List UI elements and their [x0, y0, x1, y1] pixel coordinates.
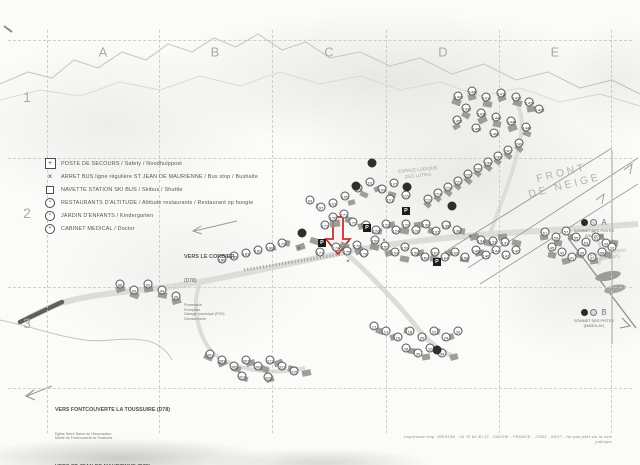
- facility-marker-icon: [298, 229, 307, 238]
- facility-marker-icon: [403, 183, 412, 192]
- chalet-number-marker: 313: [278, 362, 287, 371]
- chalet-number-marker: 136: [453, 226, 462, 235]
- direction-corbier: VERS LE CORBIER (D78) PharmaciePompiersG…: [184, 236, 274, 339]
- chalet-number-marker: 26: [454, 327, 463, 336]
- chalet-number-marker: 168: [461, 253, 470, 262]
- kindergarten-icon: •: [45, 211, 55, 221]
- chalet-number-marker: 1452: [453, 116, 462, 125]
- chalet-number-marker: 226: [464, 170, 473, 179]
- chalet-number-marker: 230: [474, 164, 483, 173]
- chalet-number-marker: 222: [454, 177, 463, 186]
- chalet-number-marker: 12: [370, 322, 379, 331]
- grid-line-horizontal: [8, 40, 632, 41]
- chalet-number-marker: 115: [402, 191, 411, 200]
- chalet-number-marker: 20: [418, 333, 427, 342]
- label-espace-ludique: ESPACE LUDIQUE DES LUTINS: [388, 164, 449, 181]
- scanned-village-map-page: ABCDE123 +POSTE DE SECOURS / Safety / No…: [0, 0, 640, 465]
- chalet-number-marker: 234: [484, 158, 493, 167]
- chalet-number-marker: 88: [116, 280, 125, 289]
- chalet-number-marker: 303: [218, 356, 227, 365]
- facility-marker-icon: [368, 159, 377, 168]
- chalet-number-marker: 18: [406, 327, 415, 336]
- facility-marker-icon: [352, 182, 361, 191]
- grid-line-vertical: [386, 30, 387, 433]
- grid-column-letter: A: [99, 45, 108, 60]
- bus-stop-cross-icon: ×: [346, 259, 350, 265]
- chalet-number-marker: 148: [472, 246, 481, 255]
- chalet-number-marker: 1402: [454, 92, 463, 101]
- chalet-number-marker: 132: [432, 227, 441, 236]
- chalet-number-marker: 138: [442, 221, 451, 230]
- chalet-number-marker: 307: [242, 356, 251, 365]
- chalet-number-marker: 103: [329, 199, 338, 208]
- chalet-number-marker: 317: [238, 372, 247, 381]
- grid-row-number: 2: [23, 205, 31, 221]
- chalet-number-marker: 309: [254, 362, 263, 371]
- direction-title: VERS FONTCOUVERTE LA TOUSSUIRE (D78): [55, 407, 205, 413]
- chalet-number-marker: 1415: [497, 89, 506, 98]
- chalet-number-marker: 124: [392, 226, 401, 235]
- chalet-number-marker: 146: [482, 251, 491, 260]
- restaurant-icon: •: [45, 198, 55, 208]
- grid-line-horizontal: [8, 287, 632, 288]
- chalet-number-marker: 16: [394, 333, 403, 342]
- chalet-number-marker: 214: [434, 189, 443, 198]
- chalet-number-marker: 144: [492, 246, 501, 255]
- chalet-number-marker: 154: [391, 248, 400, 257]
- chalet-number-marker: 1432: [462, 104, 471, 113]
- direction-sub-line: Mairie de Fontcouverte-la-Toussuire: [55, 436, 205, 440]
- grid-column-letter: E: [551, 45, 560, 60]
- grid-column-letter: C: [324, 45, 333, 60]
- chalet-number-marker: 24: [442, 333, 451, 342]
- chalet-number-marker: 177: [316, 248, 325, 257]
- chalet-number-marker: 101: [386, 195, 395, 204]
- grid-row-number: 1: [23, 89, 31, 105]
- chalet-number-marker: 120: [372, 226, 381, 235]
- shuttle-icon: [46, 186, 54, 194]
- chalet-number-marker: 242: [504, 146, 513, 155]
- chalet-number-marker: 171: [340, 210, 349, 219]
- chalet-number-marker: 172: [349, 218, 358, 227]
- chalet-number-marker: 156: [401, 243, 410, 252]
- chalet-number-marker: 166: [451, 248, 460, 257]
- direction-title: VERS LE CORBIER: [184, 254, 274, 260]
- legend-item-label: RESTAURANTS D'ALTITUDE / Altitude restau…: [61, 200, 253, 206]
- facility-marker-icon: [448, 202, 457, 211]
- legend-item-label: POSTE DE SECOURS / Safety / Noodhulppost: [61, 161, 182, 167]
- arrow-down-left-icon: [26, 390, 35, 400]
- chalet-number-marker: 164: [441, 253, 450, 262]
- chalet-number-marker: 1440: [492, 113, 501, 122]
- building-footprint: [449, 353, 458, 361]
- chalet-number-marker: 305: [230, 362, 239, 371]
- chalet-number-marker: 179: [278, 239, 287, 248]
- chalet-number-marker: 1460: [490, 129, 499, 138]
- building-footprint: [400, 255, 410, 262]
- first-aid-icon: +: [45, 158, 56, 169]
- chalet-number-marker: 94: [158, 286, 167, 295]
- chalet-number-marker: 1424: [525, 98, 534, 107]
- direction-road: (D78): [184, 278, 274, 284]
- water-reservoir: [594, 269, 621, 283]
- chalet-number-marker: 1444: [507, 117, 516, 126]
- chalet-number-marker: 175: [343, 247, 352, 256]
- first-aid-icon: +: [44, 159, 56, 169]
- legend-item-label: ARRET BUS ligne régulière ST JEAN DE MAU…: [61, 174, 258, 180]
- chalet-number-marker: 1411: [482, 93, 491, 102]
- chalet-number-marker: 96: [172, 292, 181, 301]
- scan-shadow: [210, 448, 430, 465]
- legend-item-label: CABINET MEDICAL / Doctor: [61, 226, 135, 232]
- lift-arrowhead-icon: [620, 318, 630, 328]
- bus-stop-cross-icon: ×: [382, 238, 386, 244]
- legend-item-label: NAVETTE STATION SKI BUS / Skibus / Shutt…: [61, 187, 183, 193]
- chalet-number-marker: 170: [329, 213, 338, 222]
- legend-item-label: JARDIN D'ENFANTS / Kindergarten: [61, 213, 153, 219]
- chalet-number-marker: 43: [558, 248, 567, 257]
- lift-station-b: B SOMMET DES PISTES (MAROLAY): [568, 308, 620, 328]
- building-footprint: [301, 369, 311, 377]
- mountain-shading: [150, 10, 630, 150]
- bus-stop-icon: ×: [44, 172, 56, 182]
- chalet-number-marker: 53: [582, 238, 591, 247]
- restaurant-icon: •: [44, 198, 56, 208]
- chalet-number-marker: 1428: [535, 105, 544, 114]
- chairlift-icon: [590, 309, 597, 316]
- chalet-number-marker: 1420: [512, 93, 521, 102]
- chalet-number-marker: 315: [290, 367, 299, 376]
- chalet-number-marker: 122: [382, 220, 391, 229]
- chalet-number-marker: 218: [444, 183, 453, 192]
- legend-item: •JARDIN D'ENFANTS / Kindergarten: [44, 209, 258, 222]
- facility-marker-icon: [433, 346, 442, 355]
- chalet-number-marker: 173: [321, 221, 330, 230]
- chalet-number-marker: 92: [144, 280, 153, 289]
- direction-fontcouverte-stjean: VERS FONTCOUVERTE LA TOUSSUIRE (D78) Egl…: [55, 389, 205, 465]
- grid-column-letter: B: [211, 45, 220, 60]
- print-imprint: Impression Imp. GRISONI - 04 79 64 30 12…: [388, 434, 612, 444]
- chalet-number-marker: 128: [412, 226, 421, 235]
- legend-item: ×ARRET BUS ligne régulière ST JEAN DE MA…: [44, 170, 258, 183]
- chalet-number-marker: 319: [264, 373, 273, 382]
- lift-caption: SOMMET DES PISTES (VILLARD): [568, 229, 620, 238]
- grid-row-number: 3: [23, 315, 31, 331]
- chalet-number-marker: 246: [515, 139, 524, 148]
- chalet-number-marker: 301: [206, 350, 215, 359]
- chalet-number-marker: 1448: [522, 123, 531, 132]
- chalet-number-marker: 1406: [468, 87, 477, 96]
- parking-icon: P: [363, 224, 371, 232]
- gondola-icon: [581, 219, 588, 226]
- label-front-de-neige: FRONT DE NEIGE: [497, 152, 629, 209]
- chalet-number-marker: 28: [402, 344, 411, 353]
- chalet-number-marker: 59: [552, 233, 561, 242]
- direction-sublist: PharmaciePompiersGarage municipal (P2V)G…: [184, 303, 274, 321]
- chalet-number-marker: 109: [378, 185, 387, 194]
- chalet-number-marker: 14: [382, 327, 391, 336]
- grid-column-letter: D: [438, 45, 447, 60]
- water-reservoir: [603, 283, 626, 295]
- medical-icon: +: [45, 224, 55, 234]
- shuttle-icon: [44, 185, 56, 195]
- chalet-number-marker: 105: [341, 192, 350, 201]
- legend-item: •RESTAURANTS D'ALTITUDE / Altitude resta…: [44, 196, 258, 209]
- chalet-number-marker: 45: [548, 243, 557, 252]
- chalet-number-marker: 158: [411, 248, 420, 257]
- chalet-number-marker: 140: [512, 246, 521, 255]
- building-footprint: [422, 353, 431, 360]
- chalet-number-marker: 238: [494, 152, 503, 161]
- lift-caption: SOMMET DES PISTES (MAROLAY): [568, 319, 620, 328]
- legend-item: NAVETTE STATION SKI BUS / Skibus / Shutt…: [44, 183, 258, 196]
- parking-icon: P: [433, 258, 441, 266]
- legend-item: +POSTE DE SECOURS / Safety / Noodhulppos…: [44, 157, 258, 170]
- building-footprint: [347, 199, 355, 206]
- direction-sublist: Eglise Notre Dame de l'AssomptionMairie …: [55, 432, 205, 441]
- chalet-number-marker: 174: [332, 243, 341, 252]
- chalet-number-marker: 176: [353, 241, 362, 250]
- chalet-number-marker: 126: [402, 220, 411, 229]
- chalet-number-marker: 134: [477, 236, 486, 245]
- lift-station-a: A SOMMET DES PISTES (VILLARD): [568, 218, 620, 238]
- grid-line-vertical: [272, 30, 273, 433]
- chalet-number-marker: 41: [568, 253, 577, 262]
- scan-shadow: [560, 20, 640, 140]
- chalet-number-marker: 131: [501, 238, 510, 247]
- chalet-number-marker: 133: [489, 237, 498, 246]
- chalet-number-marker: 30: [414, 349, 423, 358]
- bus-stop-cross-icon: ×: [468, 234, 472, 240]
- lift-arrowhead-icon: [596, 194, 604, 204]
- chalet-number-marker: 111: [366, 178, 375, 187]
- chalet-number-marker: 311: [266, 356, 275, 365]
- lift-letter: A: [601, 218, 606, 227]
- map-legend: +POSTE DE SECOURS / Safety / Noodhulppos…: [44, 157, 258, 235]
- chalet-number-marker: 90: [130, 286, 139, 295]
- chalet-number-marker: 162: [431, 248, 440, 257]
- bus-stop-icon: ×: [48, 173, 53, 181]
- chalet-number-marker: 210: [424, 195, 433, 204]
- medical-icon: +: [44, 224, 56, 234]
- chalet-number-marker: 1456: [472, 124, 481, 133]
- mountain-ridge-sketch: [0, 34, 640, 106]
- chalet-number-marker: 99: [306, 196, 315, 205]
- chalet-number-marker: 97: [317, 203, 326, 212]
- direction-sub-line: Gendarmerie: [184, 317, 274, 322]
- chalet-number-marker: 178: [360, 249, 369, 258]
- kindergarten-icon: •: [44, 211, 56, 221]
- parking-icon: P: [402, 207, 410, 215]
- bus-stop-cross-icon: ×: [297, 246, 301, 252]
- chairlift-icon: [590, 219, 597, 226]
- scan-artifact: [4, 26, 12, 32]
- chalet-number-marker: 22: [430, 327, 439, 336]
- legend-item: +CABINET MEDICAL / Doctor: [44, 222, 258, 235]
- gondola-icon: [581, 309, 588, 316]
- chalet-number-marker: 61: [541, 228, 550, 237]
- parking-icon: P: [318, 239, 326, 247]
- chalet-number-marker: 150: [371, 236, 380, 245]
- chalet-number-marker: 160: [421, 253, 430, 262]
- lift-letter: B: [601, 308, 606, 317]
- chalet-number-marker: 142: [502, 251, 511, 260]
- chalet-number-marker: 1436: [477, 109, 486, 118]
- chalet-number-marker: 130: [422, 220, 431, 229]
